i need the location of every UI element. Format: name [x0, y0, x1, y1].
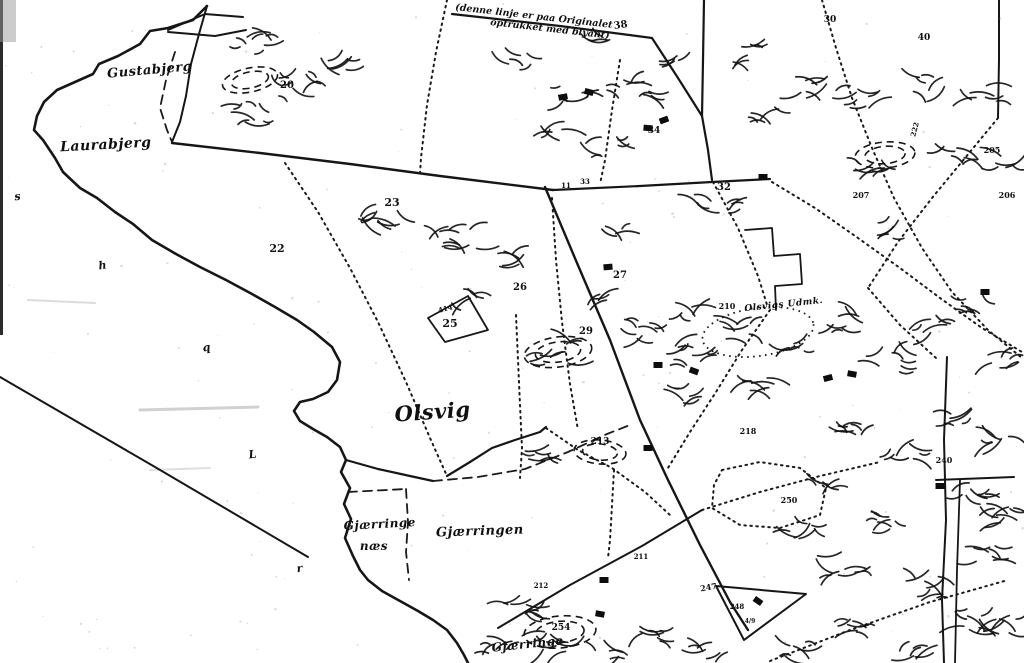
- place-label: Gjærringen: [436, 522, 524, 540]
- num-label: 211: [634, 552, 649, 561]
- num-label: 25: [442, 317, 457, 330]
- num-label: 210: [719, 301, 736, 311]
- num-label: 33: [580, 177, 590, 186]
- num-label: 247: [699, 581, 717, 594]
- num-label: 38: [613, 19, 628, 32]
- num-label: 240: [936, 455, 953, 465]
- sea-survey-line: [0, 377, 308, 557]
- place-label: næs: [360, 539, 388, 553]
- dot-r5: [868, 118, 998, 288]
- num-label: 22: [269, 242, 284, 255]
- num-label: 250: [781, 495, 798, 505]
- sea-label: q: [202, 341, 212, 355]
- num-label: 254: [552, 623, 571, 633]
- lines-layer: [0, 0, 1022, 663]
- num-label: 23: [384, 196, 399, 209]
- dot-r11: [600, 60, 620, 184]
- vertical-topright: [998, 0, 999, 117]
- num-label: 29: [579, 326, 593, 337]
- parcel-25-edge: [428, 296, 488, 342]
- place-label: Gjærringe: [491, 633, 564, 654]
- sea-label: L: [247, 448, 258, 462]
- num-label: 218: [740, 426, 757, 436]
- noise-layer: [5, 0, 1024, 650]
- note-slant-line: [452, 14, 712, 180]
- survey-line-b: [545, 187, 748, 630]
- wedge-2: [168, 30, 246, 36]
- num-label: 212: [534, 581, 549, 590]
- scanned-map-page: 2022232541426272911333038403432205206207…: [0, 0, 1024, 663]
- sea-label: s: [14, 190, 22, 204]
- labels-layer: 2022232541426272911333038403432205206207…: [14, 2, 1016, 655]
- num-label: 26: [513, 282, 527, 293]
- dot-top: [420, 0, 447, 174]
- horizontal-right: [936, 477, 1014, 480]
- hills-layer: [220, 62, 916, 651]
- map-canvas: 2022232541426272911333038403432205206207…: [0, 0, 1024, 663]
- num-label: 248: [730, 602, 745, 611]
- sea-label: h: [98, 259, 108, 273]
- num-label: 414: [437, 302, 454, 315]
- road-right-1: [942, 357, 947, 663]
- terrain-layer: [221, 26, 1024, 663]
- num-label: 27: [613, 270, 627, 281]
- bay-south: [346, 460, 433, 481]
- num-label: 205: [984, 145, 1001, 155]
- dot-r2: [772, 182, 1022, 352]
- coast-main: [34, 6, 468, 663]
- buildings-layer: [558, 88, 989, 618]
- gjaerringen-north: [498, 510, 702, 628]
- dot-gj-east: [608, 470, 614, 558]
- place-label: Gjærringe: [343, 515, 416, 533]
- place-label: Olsvig: [394, 396, 472, 426]
- num-label: 207: [853, 190, 870, 200]
- num-label: 213: [591, 437, 610, 447]
- dot-r4: [713, 182, 768, 308]
- num-label: 20: [280, 80, 294, 91]
- step-boundary: [745, 228, 802, 310]
- num-label: 206: [999, 190, 1016, 200]
- dot-250-loop: [712, 462, 826, 528]
- place-label: Laurabjerg: [59, 135, 152, 156]
- place-label: Gustabjerg: [107, 59, 193, 81]
- num-label: 30: [824, 15, 837, 25]
- dot-vert-25: [516, 315, 522, 478]
- dash-bay: [433, 425, 630, 481]
- road-right-2: [955, 480, 960, 663]
- dash-naes-1: [348, 489, 406, 492]
- vertical-top: [702, 0, 704, 116]
- num-label: 11: [561, 181, 571, 190]
- num-label: 222: [908, 121, 921, 138]
- num-label: 4/9: [745, 618, 756, 625]
- wedge-1: [168, 14, 243, 30]
- num-label: 34: [648, 126, 661, 136]
- triangle-field: [716, 586, 806, 640]
- num-label: 40: [918, 33, 931, 43]
- sea-label: r: [296, 562, 305, 576]
- dash-naes-2: [406, 489, 409, 580]
- survey-line-a: [172, 143, 553, 190]
- place-label: Olsvigs Udmk.: [744, 296, 824, 314]
- dot-r8: [668, 310, 770, 468]
- dot-bottom-right: [770, 580, 1008, 661]
